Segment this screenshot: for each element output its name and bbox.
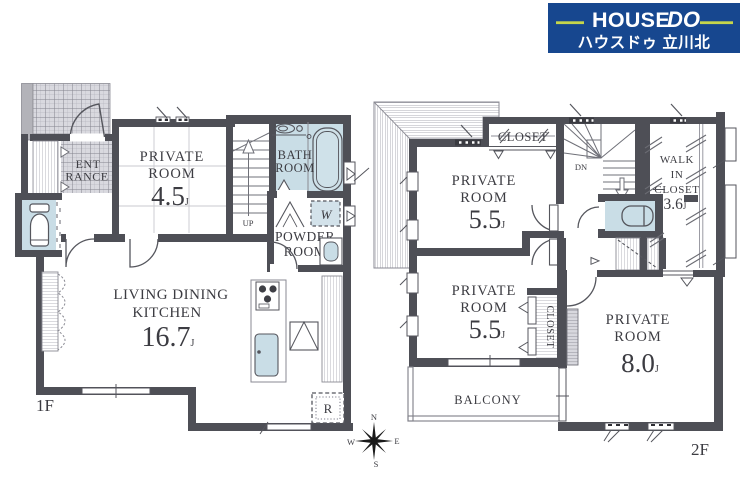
svg-text:8.0J: 8.0J bbox=[621, 348, 659, 378]
svg-text:PRIVATE: PRIVATE bbox=[606, 312, 671, 328]
svg-text:DN: DN bbox=[575, 162, 587, 172]
svg-text:CLOSET: CLOSET bbox=[544, 306, 555, 349]
svg-text:S: S bbox=[374, 459, 379, 469]
svg-text:2F: 2F bbox=[691, 440, 709, 459]
svg-text:4.5J: 4.5J bbox=[151, 181, 189, 211]
svg-text:E: E bbox=[394, 436, 399, 446]
svg-text:IN: IN bbox=[671, 169, 684, 181]
svg-text:ROOM: ROOM bbox=[614, 329, 662, 345]
svg-text:ROOM: ROOM bbox=[460, 300, 508, 316]
svg-text:KITCHEN: KITCHEN bbox=[132, 305, 201, 321]
svg-text:W: W bbox=[321, 207, 333, 222]
svg-text:5.5J: 5.5J bbox=[469, 315, 506, 344]
svg-text:ROOM: ROOM bbox=[148, 166, 196, 182]
svg-text:5.5J: 5.5J bbox=[469, 205, 506, 234]
svg-text:PRIVATE: PRIVATE bbox=[452, 283, 517, 299]
svg-text:N: N bbox=[371, 412, 377, 422]
svg-text:UP: UP bbox=[243, 218, 254, 228]
svg-text:BATH: BATH bbox=[278, 148, 313, 162]
svg-text:W: W bbox=[347, 437, 355, 447]
svg-text:DO: DO bbox=[667, 7, 700, 32]
svg-text:R: R bbox=[324, 401, 333, 416]
svg-text:ROOM: ROOM bbox=[460, 190, 508, 206]
svg-text:PRIVATE: PRIVATE bbox=[452, 173, 517, 189]
svg-text:1F: 1F bbox=[36, 396, 54, 415]
svg-text:PRIVATE: PRIVATE bbox=[140, 149, 205, 165]
svg-text:WALK: WALK bbox=[660, 154, 694, 166]
svg-text:16.7J: 16.7J bbox=[142, 322, 195, 353]
svg-text:ハウスドゥ 立川北: ハウスドゥ 立川北 bbox=[578, 33, 711, 52]
svg-text:LIVING DINING: LIVING DINING bbox=[113, 287, 228, 303]
svg-text:ROOM: ROOM bbox=[275, 161, 315, 175]
svg-text:HOUSE: HOUSE bbox=[592, 8, 670, 32]
svg-text:RANCE: RANCE bbox=[65, 170, 108, 184]
svg-text:BALCONY: BALCONY bbox=[454, 393, 521, 407]
